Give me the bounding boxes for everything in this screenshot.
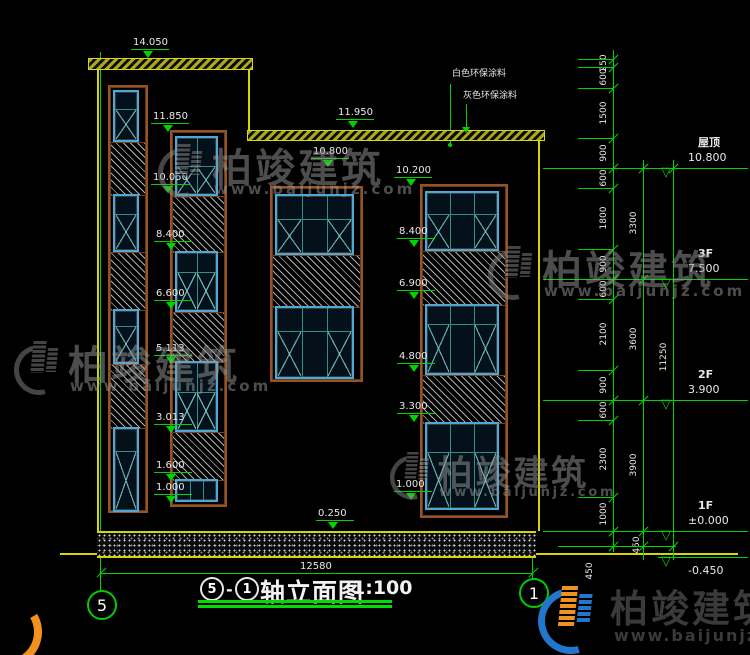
dim-value: 1500 xyxy=(599,93,609,133)
window xyxy=(113,427,139,512)
level-triangle xyxy=(409,365,419,372)
level-triangle xyxy=(166,302,176,309)
window xyxy=(275,306,354,379)
extension-line xyxy=(578,67,614,68)
drawing-scale: 1:100 xyxy=(352,577,412,599)
cad-elevation-screenshot: 14.05011.85010.0508.4006.6005.1133.0131.… xyxy=(0,0,750,655)
level-underline xyxy=(151,123,189,124)
title-axis-5-label: 5 xyxy=(207,582,216,597)
wall-hatch-panel xyxy=(273,255,360,308)
title-underline xyxy=(198,600,392,603)
floor-level-line xyxy=(658,168,748,169)
window-pane xyxy=(328,332,351,376)
axis-bubble-5: 5 xyxy=(87,590,117,620)
floor-level-triangle: ▽ xyxy=(661,166,671,179)
wall-hatch-panel xyxy=(111,252,145,311)
window-mullion xyxy=(450,193,451,249)
window-mullion xyxy=(302,308,303,377)
axis-bubble-5-label: 5 xyxy=(97,596,107,615)
floor-label: 2F xyxy=(698,369,713,381)
level-value: 11.850 xyxy=(153,112,188,123)
dim-value: 2100 xyxy=(599,314,609,354)
dim-value: 600 xyxy=(599,158,609,198)
level-value: 0.250 xyxy=(318,509,347,520)
level-underline xyxy=(316,520,354,521)
floor-level-triangle: ▽ xyxy=(661,398,671,411)
level-triangle xyxy=(143,51,153,58)
watermark-url: www.baijunjz.com xyxy=(544,282,745,300)
wall-hatch-panel xyxy=(111,142,145,196)
floor-level-value: 10.800 xyxy=(688,152,727,164)
extension-line xyxy=(558,546,676,547)
floor-label: 1F xyxy=(698,500,713,512)
window-pane xyxy=(328,220,351,252)
watermark-logo-icon xyxy=(14,337,66,393)
dim-value: 1000 xyxy=(599,494,609,534)
floor-level-value: 3.900 xyxy=(688,384,720,396)
ground-hatch-band xyxy=(97,531,536,558)
level-triangle xyxy=(166,426,176,433)
title-axis-1-label: 1 xyxy=(242,582,251,597)
parapet-band xyxy=(88,58,253,70)
dim-value: 3900 xyxy=(629,445,639,485)
level-value: 10.200 xyxy=(396,166,431,177)
level-triangle xyxy=(163,125,173,132)
window-pane xyxy=(428,325,449,372)
window-pane xyxy=(278,220,301,252)
watermark-logo-icon xyxy=(158,140,210,196)
window xyxy=(113,194,139,252)
dim-value: 600 xyxy=(599,390,609,430)
level-value: 8.400 xyxy=(156,230,185,241)
extension-line xyxy=(578,420,614,421)
watermark-url: www.baijunjz.com xyxy=(70,377,271,395)
level-underline xyxy=(154,241,192,242)
window-pane xyxy=(116,110,136,139)
floor-level-line xyxy=(658,557,748,558)
watermark-logo-icon xyxy=(390,449,436,498)
extension-line xyxy=(543,168,676,169)
wall-line xyxy=(97,67,99,531)
title-dash: - xyxy=(226,580,233,599)
watermark-url: www.baijunjz.com xyxy=(439,484,616,500)
window-mullion xyxy=(450,306,451,373)
window-strip xyxy=(270,186,363,382)
brand-logo-text: 柏竣建筑 xyxy=(610,578,750,633)
dim-value: 3300 xyxy=(629,203,639,243)
level-underline xyxy=(397,363,435,364)
window xyxy=(113,90,139,142)
level-underline xyxy=(397,238,435,239)
wall-hatch-panel xyxy=(173,432,224,481)
floor-level-line xyxy=(658,400,748,401)
title-axis-bubble-1: 1 xyxy=(235,577,259,601)
window-pane xyxy=(278,332,301,376)
level-underline xyxy=(154,494,192,495)
level-value: 8.400 xyxy=(399,227,428,238)
elevation-drawing-layer: 14.05011.85010.0508.4006.6005.1133.0131.… xyxy=(0,0,750,655)
brand-logo-icon xyxy=(536,578,608,652)
dim-value: 3600 xyxy=(629,319,639,359)
extension-line xyxy=(578,59,614,60)
dim-value: 600 xyxy=(599,57,609,97)
wall-hatch-panel xyxy=(173,196,224,253)
window xyxy=(425,304,499,375)
dim-value: 1800 xyxy=(599,198,609,238)
extension-line xyxy=(578,88,614,89)
wall-line xyxy=(248,68,250,130)
leader-arrow xyxy=(462,127,470,133)
level-value: 1.000 xyxy=(156,483,185,494)
level-triangle xyxy=(409,415,419,422)
floor-level-triangle: ▽ xyxy=(661,555,671,568)
level-underline xyxy=(131,49,169,50)
extension-line xyxy=(578,138,614,139)
watermark-url: www.baijunjz.com xyxy=(214,180,415,198)
dim-chain-line xyxy=(613,50,614,552)
level-triangle xyxy=(328,522,338,529)
window-mullion xyxy=(190,481,191,500)
extension-line xyxy=(578,370,614,371)
window-pane xyxy=(197,393,215,429)
window-mullion xyxy=(203,481,204,500)
window xyxy=(175,251,218,312)
level-value: 14.050 xyxy=(133,38,168,49)
level-underline xyxy=(397,413,435,414)
level-triangle xyxy=(166,474,176,481)
annotation-gray-paint: 灰色环保涂料 xyxy=(463,92,517,101)
floor-level-line xyxy=(658,531,748,532)
wall-hatch-panel xyxy=(423,375,505,424)
window-pane xyxy=(116,215,136,249)
level-underline xyxy=(397,290,435,291)
brand-logo-url: www.baijunjz.com xyxy=(614,626,750,645)
brand-logo: 柏竣建筑 www.baijunjz.com xyxy=(536,576,750,655)
level-triangle xyxy=(409,240,419,247)
drawing-title: 轴立面图 xyxy=(260,573,364,609)
level-underline xyxy=(154,300,192,301)
level-underline xyxy=(394,177,432,178)
level-value: 1.600 xyxy=(156,461,185,472)
axis-line xyxy=(466,104,467,129)
window-strip xyxy=(108,85,148,513)
level-underline xyxy=(336,119,374,120)
window-mullion xyxy=(302,196,303,253)
level-value: 4.800 xyxy=(399,352,428,363)
axis-line xyxy=(100,52,101,591)
window-pane xyxy=(116,452,136,509)
level-triangle xyxy=(348,121,358,128)
level-value: 3.300 xyxy=(399,402,428,413)
level-value: 6.600 xyxy=(156,289,185,300)
overall-dimension-label: 12580 xyxy=(300,562,332,573)
extension-line xyxy=(578,188,614,189)
window-pane xyxy=(197,273,215,309)
level-triangle xyxy=(409,292,419,299)
level-triangle xyxy=(166,496,176,503)
level-value: 3.013 xyxy=(156,413,185,424)
floor-label: 屋顶 xyxy=(698,137,720,149)
leader-dot xyxy=(448,143,452,147)
window-pane xyxy=(428,215,449,248)
dim-chain-line xyxy=(673,160,674,560)
floor-level-triangle: ▽ xyxy=(661,529,671,542)
window-pane xyxy=(475,325,496,372)
floor-level-value: ±0.000 xyxy=(688,515,729,527)
level-value: 6.900 xyxy=(399,279,428,290)
title-underline xyxy=(198,605,392,608)
title-axis-bubble-5: 5 xyxy=(200,577,224,601)
level-value: 11.950 xyxy=(338,108,373,119)
extension-line xyxy=(543,400,676,401)
level-triangle xyxy=(166,243,176,250)
floor-level-value: -0.450 xyxy=(688,565,723,577)
annotation-white-paint: 白色环保涂料 xyxy=(452,70,506,79)
dim-value: 2300 xyxy=(599,439,609,479)
extension-line xyxy=(543,531,676,532)
level-underline xyxy=(154,424,192,425)
dim-value: 11250 xyxy=(659,337,669,377)
level-underline xyxy=(154,472,192,473)
window xyxy=(275,194,354,255)
watermark-logo-icon xyxy=(488,242,540,298)
dim-chain-line xyxy=(643,160,644,560)
